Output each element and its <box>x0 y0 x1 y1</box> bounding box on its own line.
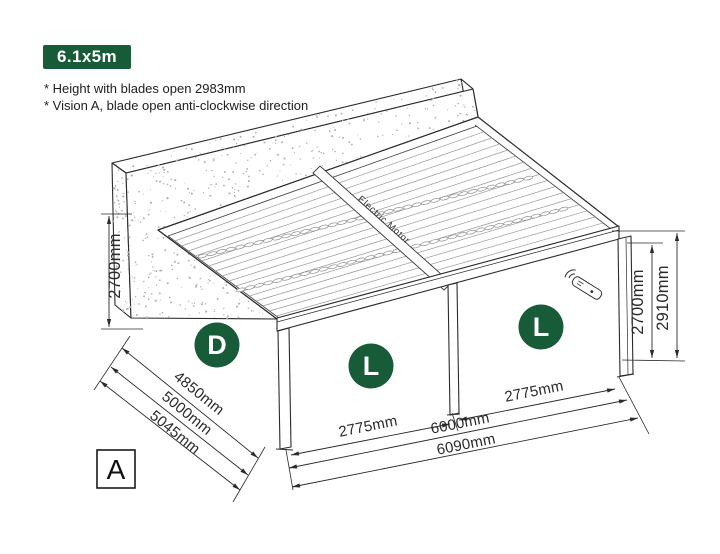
dimension-line <box>619 377 649 434</box>
zone-marker-d: D <box>195 323 240 368</box>
remote-control-icon <box>565 270 603 301</box>
zone-letter-l-left: L <box>363 351 380 381</box>
zone-marker-l-right: L <box>519 305 564 350</box>
zone-marker-l-left: L <box>349 344 394 389</box>
dimension-line <box>233 447 265 502</box>
dimension-arrowhead <box>107 216 111 224</box>
view-a-box: A <box>97 450 135 488</box>
dimension-arrowhead <box>650 245 654 253</box>
zone-letter-d: D <box>207 330 227 360</box>
view-a-letter: A <box>107 454 126 485</box>
dim-bay-right-label: 2775mm <box>503 377 565 405</box>
dimension-line <box>94 336 130 390</box>
dimension-arrowhead <box>675 233 679 241</box>
dimension-arrowhead <box>292 483 300 487</box>
dimension-arrowhead <box>607 388 615 392</box>
dimension-arrowhead <box>289 464 297 468</box>
post-middle <box>448 283 459 415</box>
dimension-line <box>286 450 293 490</box>
pergola-diagram: 2700mm 4850mm 5000mm 5045mm 2775mm 2775m… <box>0 0 720 554</box>
dimension-arrowhead <box>291 451 299 455</box>
dim-bay-left-label: 2775mm <box>337 412 399 440</box>
zone-letter-l-right: L <box>533 312 550 342</box>
post-left <box>278 328 291 449</box>
dimension-arrowhead <box>650 350 654 358</box>
dimension-line <box>276 449 293 450</box>
remote-signal-waves-icon <box>565 270 576 278</box>
dim-right-post-height-label: 2700mm <box>629 269 647 334</box>
dim-left-height-label: 2700mm <box>106 233 124 298</box>
dim-right-total-height-label: 2910mm <box>654 265 672 330</box>
dimension-arrowhead <box>619 400 627 404</box>
dimension-arrowhead <box>630 418 638 422</box>
dimension-arrowhead <box>107 319 111 327</box>
dimension-arrowhead <box>675 350 679 358</box>
pergola-spec-page: 6.1x5m * Height with blades open 2983mm … <box>0 0 720 554</box>
